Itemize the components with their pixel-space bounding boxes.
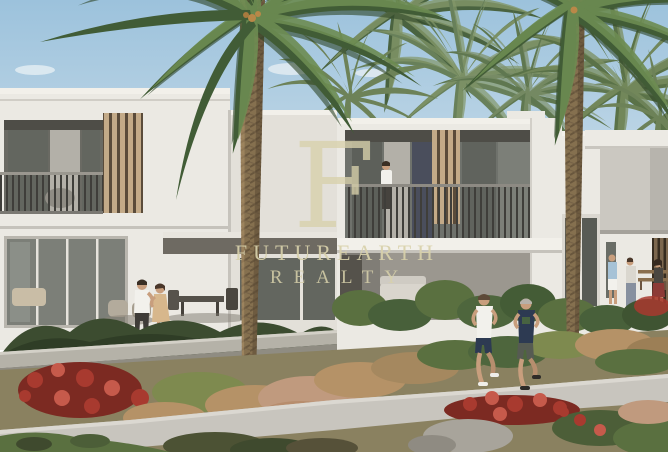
property-photo: F FUTUREARTH REALTY <box>0 0 668 452</box>
scene-svg <box>0 0 668 452</box>
balcony-railing <box>0 174 103 214</box>
cloud <box>15 65 55 75</box>
balcony-railing-middle <box>345 186 530 238</box>
interior-sofa <box>12 288 46 306</box>
balcony-left <box>0 120 103 215</box>
wood-slat-screen-left <box>103 113 143 213</box>
balcony-middle <box>345 130 530 238</box>
